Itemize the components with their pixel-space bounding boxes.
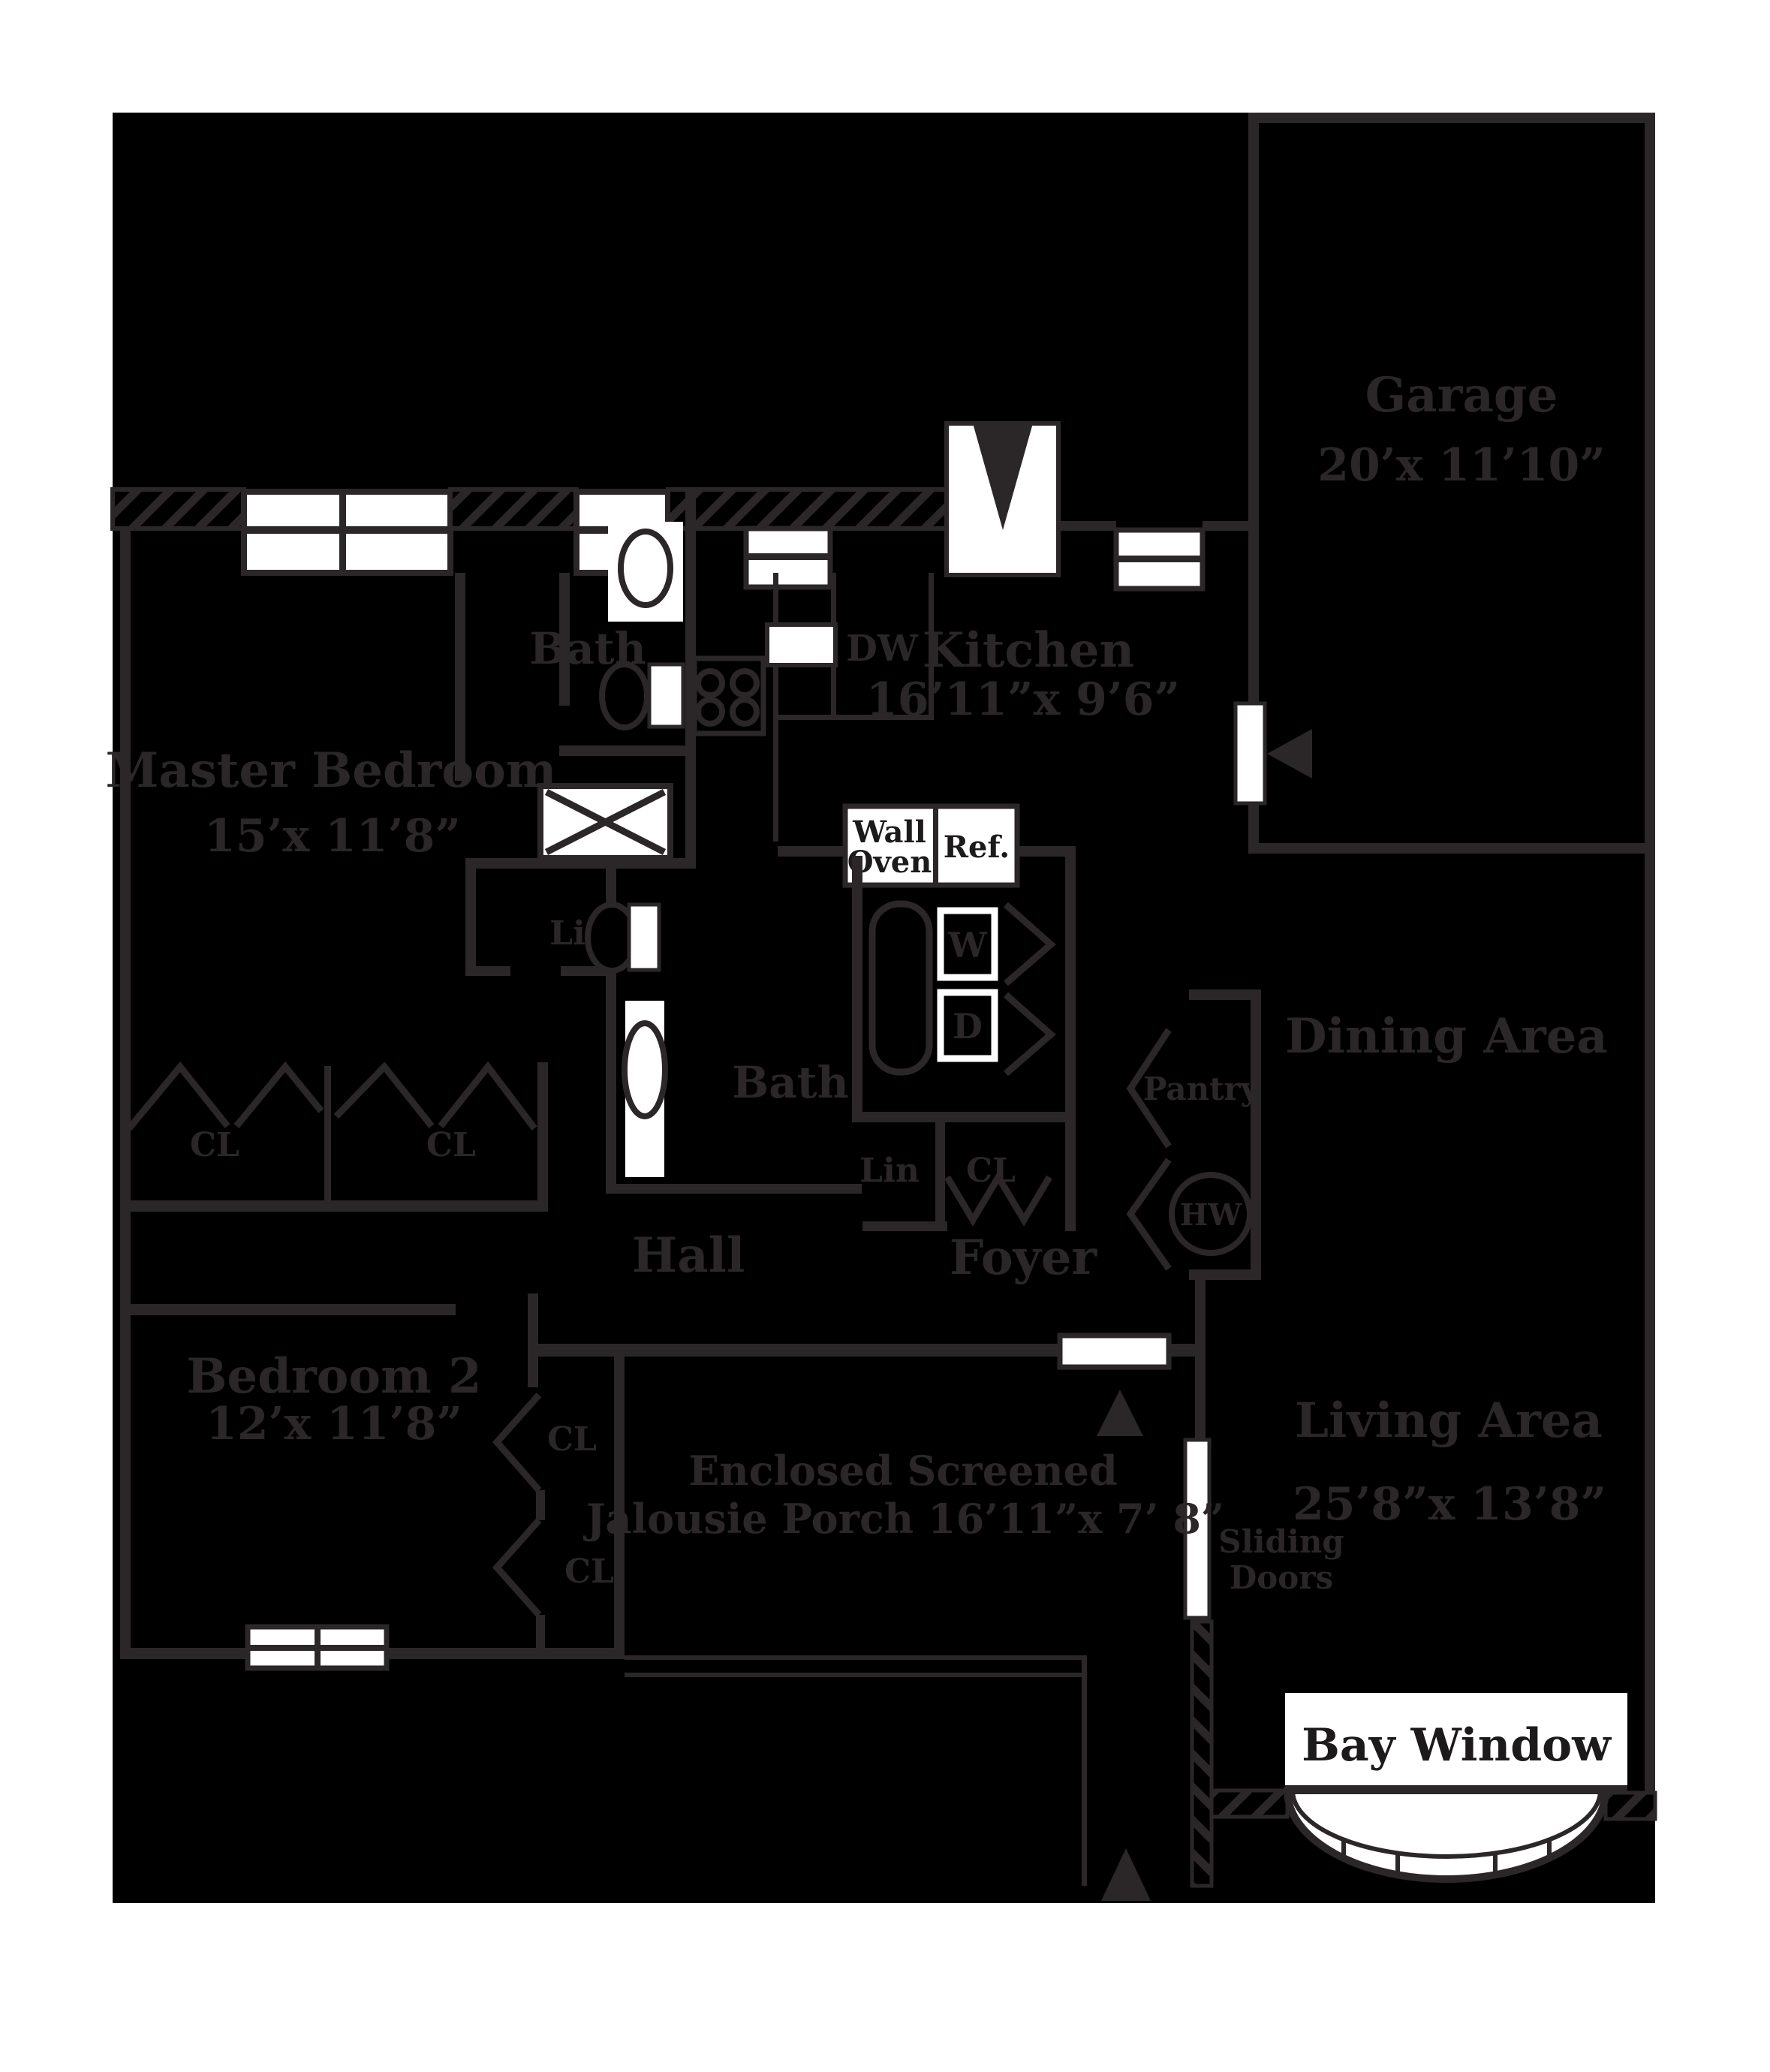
dining-area-label: Dining Area [1285,1008,1608,1065]
closet-master-left-label: CL [190,1126,239,1164]
shower-icon [540,786,670,858]
pass-through-window [767,625,835,665]
bedroom2-dims: 12’x 11’8” [206,1398,462,1450]
toilet-icon [625,1001,665,1177]
foyer-label: Foyer [950,1230,1098,1286]
hatch-wall [668,489,947,529]
window-master [244,492,450,573]
hatch-wall [450,489,576,529]
closet-bedroom2-upper-label: CL [547,1420,597,1459]
refrigerator-label: Ref. [944,830,1010,865]
shower-south-wall [465,858,696,869]
bay-window-label: Bay Window [1302,1719,1612,1772]
window-dinette [1116,530,1203,589]
bath-south-wall [559,745,696,756]
hatch-wall [1606,1793,1655,1819]
counter-line [778,715,831,720]
porch-label-line1: Enclosed Screened [688,1447,1118,1495]
garage-label: Garage [1365,367,1558,423]
pantry-label: Pantry [1143,1071,1260,1107]
bath-lower-label: Bath [732,1057,849,1108]
window-bedroom2 [248,1627,387,1668]
master-bedroom-label: Master Bedroom [106,742,557,799]
west-wall [120,488,131,1659]
hall-west-stub [528,1293,538,1387]
window-kitchen [746,529,830,587]
bath-upper-label: Bath [529,623,646,674]
kitchen-dims: 16’11”x 9’6” [866,673,1180,726]
hall-label: Hall [632,1227,745,1284]
wall-segment [1203,521,1248,531]
garage-west-wall-upper [1248,113,1259,703]
bedroom2-label: Bedroom 2 [186,1348,481,1405]
dishwasher-label: DW [846,628,919,670]
porch-label-line2: Jalousie Porch 16’11”x 7’ 8” [583,1495,1224,1543]
hatch-wall [113,489,244,529]
hatch-wall [1212,1790,1287,1817]
closet-bedroom2-lower-label: CL [564,1552,614,1591]
fireplace [947,423,1058,575]
bath2-west-wall [606,976,616,1194]
floor-plan-drawing: DW Wall Oven Ref. Lin [0,0,1770,2072]
living-area-label: Living Area [1295,1393,1603,1449]
door-leaf [1236,703,1265,803]
dryer-label: D [953,1006,983,1047]
counter-line [773,573,778,842]
garage-north-wall [1248,113,1655,123]
entry-door-leaf [1060,1336,1169,1367]
sliding-doors-label-line2: Doors [1230,1559,1333,1596]
bedroom2-north-wall [120,1304,456,1315]
living-west-wall [1195,1280,1206,1440]
garage-south-wall [1248,843,1655,854]
screen-wall-hatch [1192,1622,1212,1886]
east-wall [1645,113,1655,1809]
garage-dims: 20’x 11’10” [1317,439,1605,492]
floor-plan-page: DW Wall Oven Ref. Lin [0,0,1770,2072]
sliding-doors-label-line1: Sliding [1218,1523,1344,1560]
washer-label: W [947,925,988,965]
wall-oven-fridge: Wall Oven Ref. [845,806,1017,885]
kitchen-label: Kitchen [923,622,1134,679]
sink-icon [588,905,659,971]
wall-segment [1058,521,1116,531]
water-heater-label: HW [1180,1197,1243,1233]
bath2-south-wall [606,1184,862,1194]
master-bedroom-dims: 15’x 11’8” [204,810,461,863]
hall-south-wall [528,1344,1060,1357]
linen-foyer-label: Lin [859,1152,920,1190]
toilet-icon [608,522,683,622]
closet-master-right-label: CL [426,1126,476,1164]
